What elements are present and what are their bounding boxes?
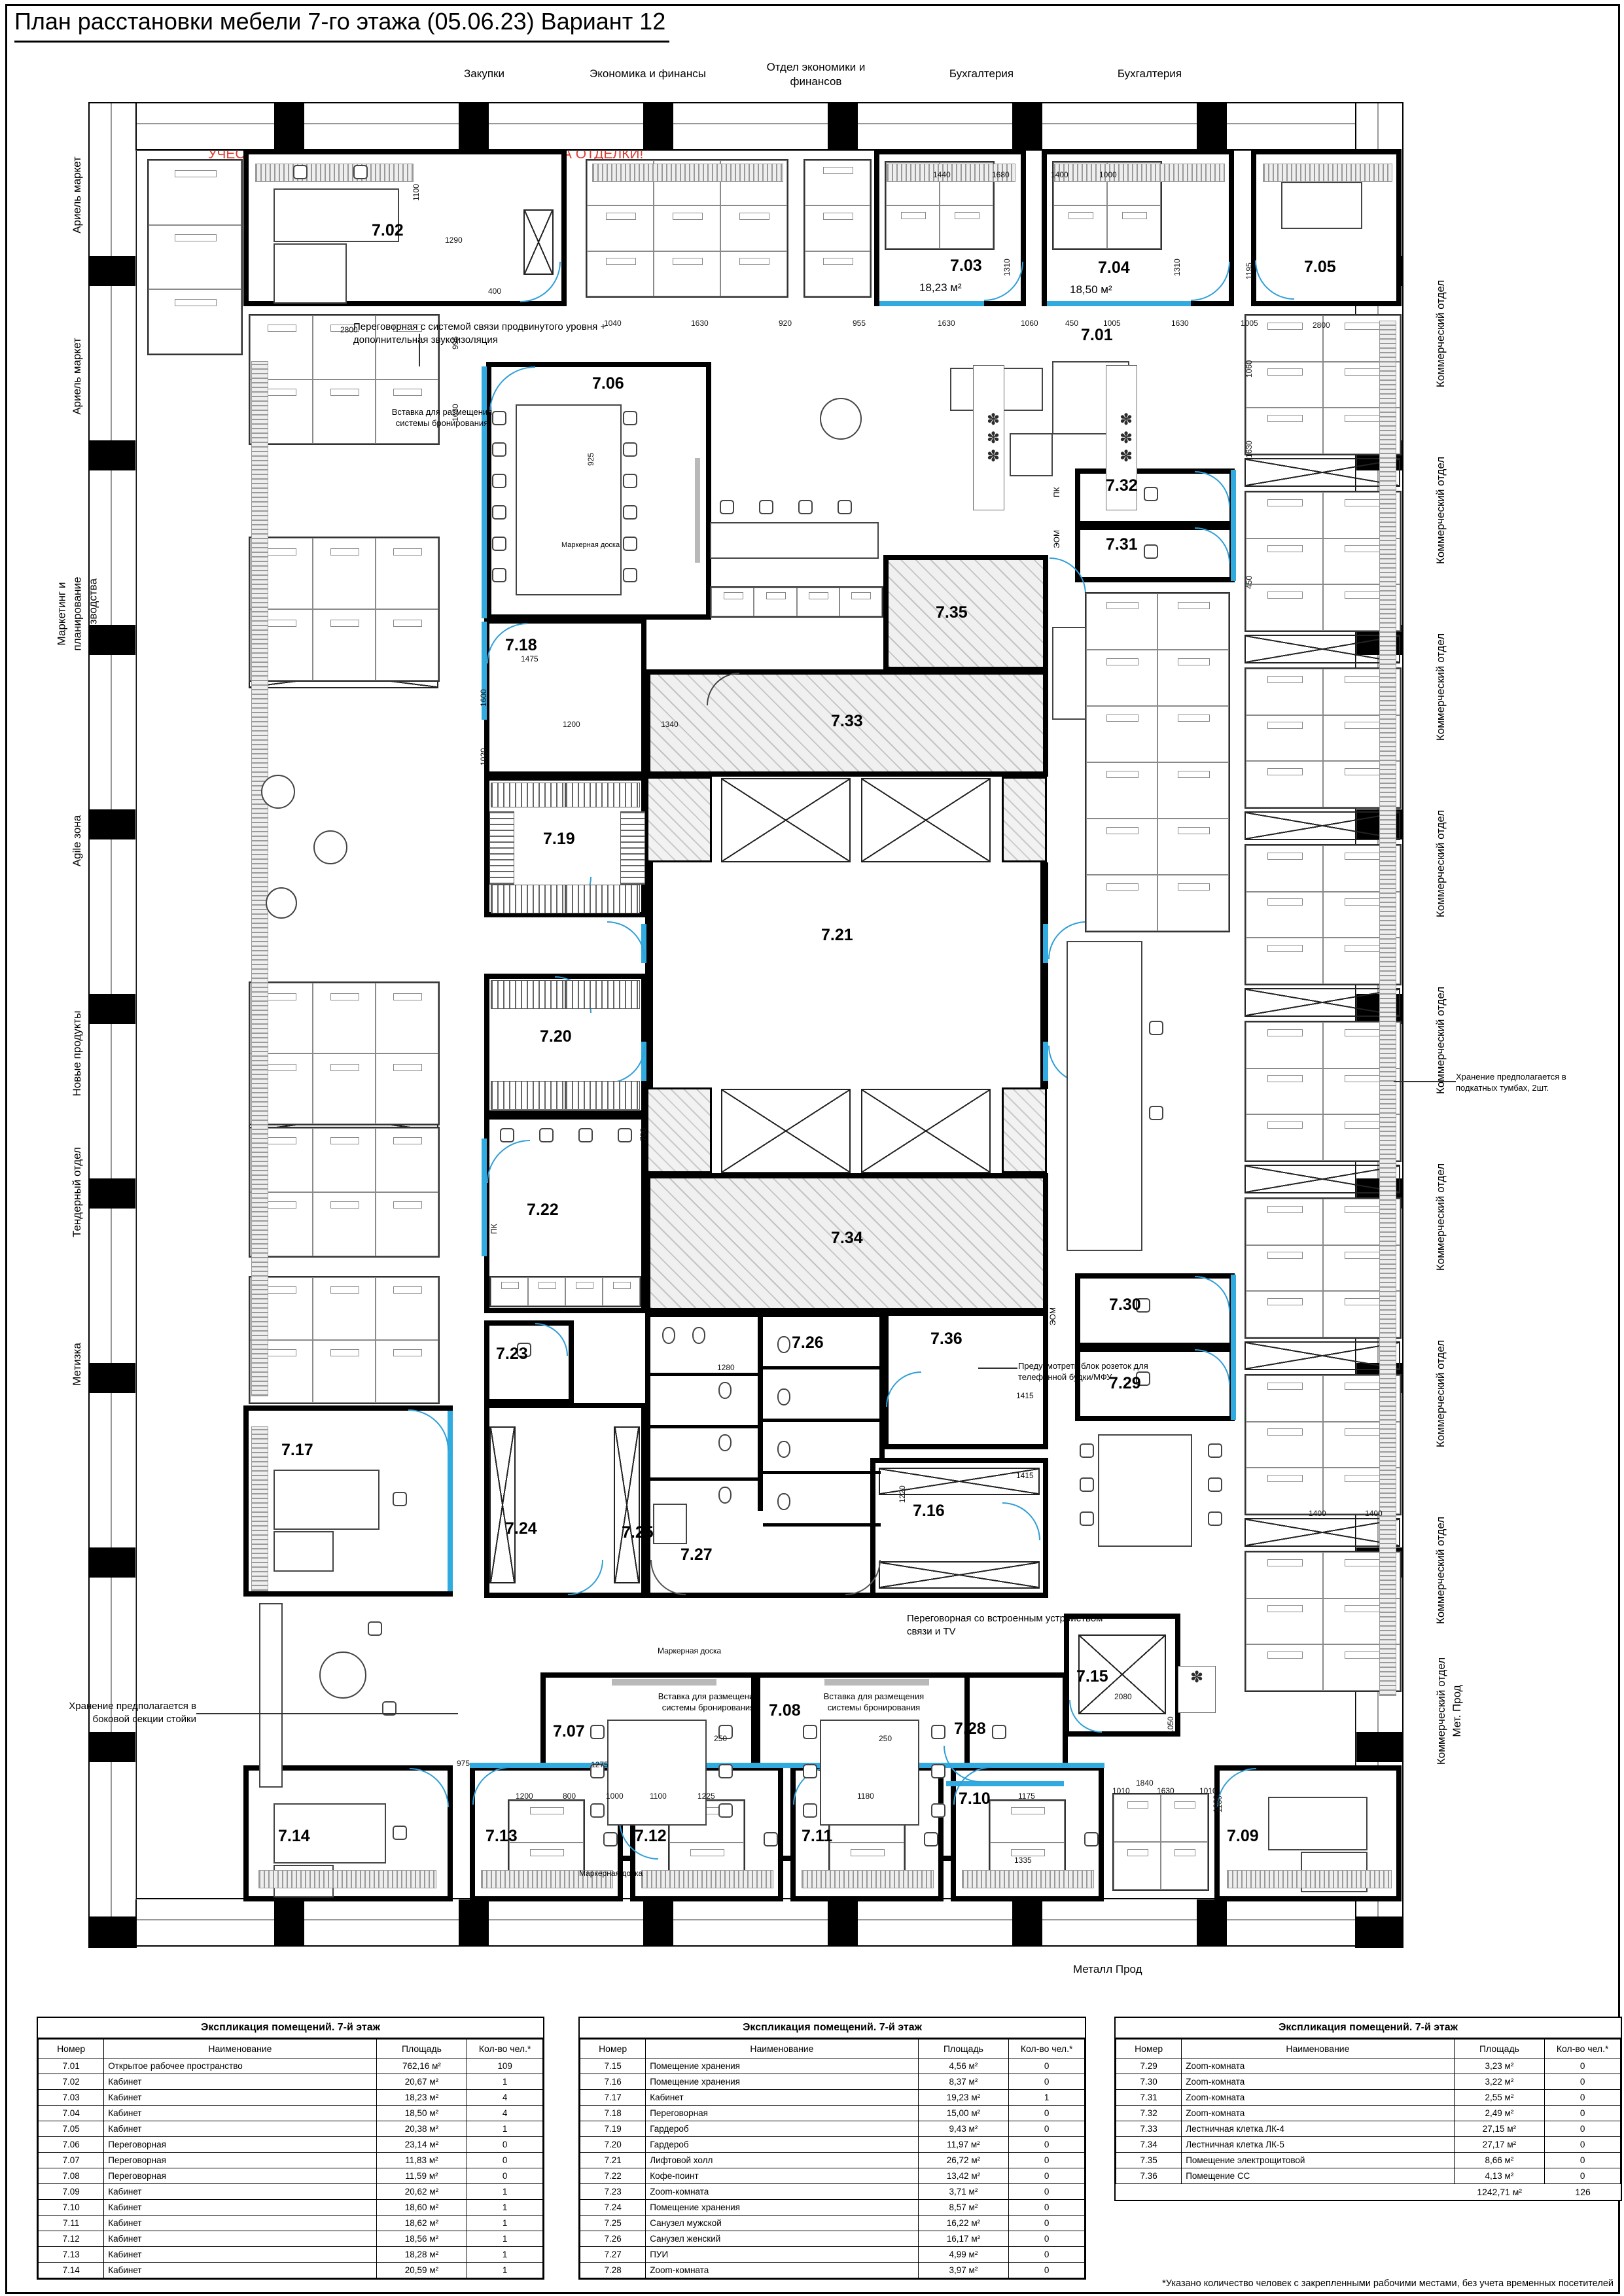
coat-rack	[565, 980, 640, 1009]
wall	[763, 1366, 881, 1369]
dimension-label: 1290	[445, 236, 463, 245]
desk	[1246, 845, 1323, 892]
wall	[650, 1477, 758, 1481]
desk	[1246, 1375, 1323, 1422]
glass-partition	[1231, 1275, 1236, 1420]
coat-rack	[565, 783, 640, 807]
coat-rack	[491, 980, 565, 1009]
wall	[763, 1523, 881, 1527]
desk	[1246, 1291, 1323, 1337]
room-number: 7.17	[281, 1441, 313, 1460]
desk	[313, 609, 376, 680]
column-header: Площадь	[1454, 2040, 1545, 2058]
room-area-cell: 3,22 м²	[1454, 2074, 1545, 2090]
exp-table-1: Экспликация помещений. 7-й этажНомерНаим…	[37, 2017, 544, 2280]
desk	[1086, 875, 1157, 931]
room-area-cell: 18,56 м²	[376, 2231, 467, 2247]
floor-plan-sheet: План расстановки мебели 7-го этажа (05.0…	[0, 0, 1624, 2296]
table-row: 7.07Переговорная11,83 м²0	[39, 2153, 543, 2168]
dimension-label: 1100	[412, 184, 421, 201]
dimension-label: 1180	[857, 1792, 874, 1801]
table-row: 7.08Переговорная11,59 м²0	[39, 2168, 543, 2184]
room-number-cell: 7.32	[1116, 2106, 1182, 2121]
department-label-right: Коммерческий отдел	[1433, 1340, 1449, 1447]
shaft-hatch	[646, 777, 712, 862]
chair	[293, 165, 308, 179]
room-name-cell: Zoom-комната	[1182, 2106, 1454, 2121]
room-name-cell: Открытое рабочее пространство	[104, 2058, 376, 2074]
room-area-cell: 13,42 м²	[918, 2168, 1009, 2184]
table-row: 7.14Кабинет20,59 м²1	[39, 2263, 543, 2278]
chair	[1080, 1477, 1094, 1492]
desk-cluster	[249, 1276, 440, 1404]
desk-cluster	[249, 1127, 440, 1258]
facade-band	[88, 1898, 1403, 1947]
annotation-line: связи и TV	[907, 1625, 1214, 1638]
desk	[1157, 650, 1229, 706]
department-label-right: Коммерческий отдел	[1433, 457, 1449, 564]
desk	[376, 1053, 438, 1124]
room-number-cell: 7.34	[1116, 2137, 1182, 2153]
schedule-footnote: *Указано количество человек с закрепленн…	[1162, 2278, 1614, 2289]
window-sill	[802, 1870, 934, 1888]
dimension-label: 1195	[1244, 262, 1254, 279]
dimension-label: 1630	[1244, 440, 1254, 458]
table-row: 7.24Помещение хранения8,57 м²0	[580, 2200, 1085, 2216]
room-people-cell: 0	[467, 2168, 543, 2184]
dimension-label: 1630	[1157, 1786, 1174, 1795]
window-sill	[1379, 321, 1396, 1696]
desk	[313, 1192, 376, 1256]
desk	[565, 1277, 603, 1306]
glass-partition	[1043, 1042, 1048, 1081]
room-people-cell: 0	[1545, 2090, 1621, 2106]
desk	[711, 588, 754, 616]
shaft-hatch	[646, 1087, 712, 1173]
department-label-line: Мет. Прод	[1449, 1657, 1465, 1765]
room-name-cell: Лифтовой холл	[646, 2153, 918, 2168]
desk	[1246, 892, 1323, 938]
room-number-cell: 7.12	[39, 2231, 104, 2247]
room-name-cell: Лестничная клетка ЛК-5	[1182, 2137, 1454, 2153]
department-label-right: Коммерческий отдел	[1433, 633, 1449, 741]
annotation-line: Переговорная с системой связи продвинуто…	[353, 321, 720, 334]
furniture-table	[820, 1720, 919, 1826]
chair	[803, 1764, 817, 1778]
room-people-cell: 0	[1009, 2184, 1085, 2200]
department-label-left: Метизка	[69, 1343, 85, 1386]
desk	[376, 609, 438, 680]
table-row: 7.19Гардероб9,43 м²0	[580, 2121, 1085, 2137]
room-people-cell: 0	[1545, 2137, 1621, 2153]
department-label-left: Новые продукты	[69, 1011, 85, 1097]
room-area-cell: 8,57 м²	[918, 2200, 1009, 2216]
chair	[578, 1128, 593, 1142]
room-name-cell: Кабинет	[104, 2200, 376, 2216]
room-people-cell: 1	[467, 2074, 543, 2090]
room-name-cell: Помещение хранения	[646, 2074, 918, 2090]
chair	[931, 1764, 945, 1778]
facade-band	[88, 102, 137, 1948]
dimension-label: 1400	[1309, 1509, 1326, 1518]
room-area-cell: 2,49 м²	[1454, 2106, 1545, 2121]
room-number: 7.27	[680, 1545, 713, 1564]
desk	[1246, 1422, 1323, 1468]
room-people-cell: 0	[467, 2137, 543, 2153]
desk	[654, 205, 720, 251]
furniture-table	[1010, 433, 1053, 476]
room-number: 7.33	[831, 712, 863, 731]
department-label-left: Тендерный отдел	[69, 1147, 85, 1237]
wall	[763, 1419, 881, 1422]
desk	[376, 1277, 438, 1340]
room-name-cell: Санузел мужской	[646, 2216, 918, 2231]
room-area-cell: 15,00 м²	[918, 2106, 1009, 2121]
annotation-line: Маркерная доска	[658, 1646, 756, 1657]
room-number: 7.03	[950, 256, 982, 275]
desk	[1246, 1468, 1323, 1514]
column-header: Номер	[1116, 2040, 1182, 2058]
annotation-line: ЭОМ	[1048, 1299, 1059, 1326]
column-header: Кол-во чел.*	[1545, 2040, 1621, 2058]
department-label-line: Бухгалтерия	[949, 67, 1014, 81]
chair	[924, 1832, 938, 1846]
desk	[1157, 706, 1229, 762]
room-people-cell: 1	[467, 2216, 543, 2231]
room-people-cell: 0	[1009, 2137, 1085, 2153]
annotation-line: ПК	[1052, 478, 1063, 497]
chair	[590, 1725, 605, 1739]
leader-line	[419, 334, 420, 366]
desk	[313, 1277, 376, 1340]
chair	[623, 505, 637, 520]
round-table	[820, 398, 862, 440]
desk	[1246, 1245, 1323, 1292]
dimension-label: 1220	[898, 1485, 907, 1503]
desk	[313, 1340, 376, 1403]
desk	[990, 1801, 1065, 1843]
room-number: 7.05	[1304, 258, 1336, 277]
elevator-shaft	[861, 1089, 991, 1173]
table-row: 7.01Открытое рабочее пространство762,16 …	[39, 2058, 543, 2074]
annotation: Маркерная доска	[561, 540, 660, 550]
room-name-cell: Помещение хранения	[646, 2200, 918, 2216]
total-people: 126	[1545, 2184, 1621, 2200]
room-people-cell: 0	[1009, 2168, 1085, 2184]
table-row: 7.18Переговорная15,00 м²0	[580, 2106, 1085, 2121]
glass-partition	[448, 1411, 453, 1591]
round-table	[261, 775, 295, 809]
room-name-cell: Кабинет	[104, 2121, 376, 2137]
table-title: Экспликация помещений. 7-й этаж	[1116, 2018, 1621, 2039]
annotation: Предусмотреть блок розеток длятелефонной…	[1018, 1361, 1214, 1383]
toilet	[718, 1487, 732, 1504]
room-area-cell: 20,59 м²	[376, 2263, 467, 2278]
room-area-cell: 23,14 м²	[376, 2137, 467, 2153]
room-number-cell: 7.29	[1116, 2058, 1182, 2074]
dimension-label: 250	[714, 1734, 727, 1743]
department-label-line: Экономика и финансы	[590, 67, 706, 81]
room-number: 7.30	[1109, 1296, 1141, 1315]
desk	[1161, 1794, 1208, 1842]
desk	[1157, 762, 1229, 819]
table-row: 7.34Лестничная клетка ЛК-527,17 м²0	[1116, 2137, 1621, 2153]
chair	[1149, 1106, 1163, 1120]
toilet	[777, 1441, 790, 1458]
dimension-label: 1335	[1014, 1856, 1032, 1865]
room-area-cell: 20,67 м²	[376, 2074, 467, 2090]
annotation-line: Маркерная доска	[579, 1869, 677, 1879]
desk-cluster	[1244, 1021, 1402, 1162]
coat-rack	[489, 811, 514, 885]
dimension-label: 1415	[1016, 1391, 1034, 1400]
room-number: 7.36	[930, 1330, 962, 1349]
desk	[1246, 761, 1323, 807]
furniture-table	[1268, 1797, 1368, 1850]
chair	[931, 1803, 945, 1818]
room-number: 7.21	[821, 926, 853, 945]
room-people-cell: 0	[1009, 2106, 1085, 2121]
table-row: 7.30Zoom-комната3,22 м²0	[1116, 2074, 1621, 2090]
column-header: Площадь	[376, 2040, 467, 2058]
room-area-cell: 3,71 м²	[918, 2184, 1009, 2200]
chair	[623, 568, 637, 582]
chair	[623, 411, 637, 425]
desk	[1246, 1552, 1323, 1598]
room-area-cell: 20,38 м²	[376, 2121, 467, 2137]
room-number: 7.22	[527, 1201, 559, 1220]
desk	[1246, 584, 1323, 631]
desk	[149, 289, 241, 354]
room-area-cell: 16,22 м²	[918, 2216, 1009, 2231]
chair	[492, 505, 506, 520]
storage-cabinet	[489, 1426, 516, 1583]
room-name-cell: Кабинет	[104, 2090, 376, 2106]
desk	[805, 205, 870, 251]
desk	[587, 205, 654, 251]
toilet	[777, 1493, 790, 1510]
furniture-table	[607, 1720, 707, 1826]
room-name-cell: Zoom-комната	[646, 2263, 918, 2278]
dimension-label: 1200	[563, 720, 580, 729]
annotation-line: Хранение предполагается в	[1456, 1072, 1624, 1083]
desk	[1246, 715, 1323, 762]
department-label-line: Метизка	[69, 1343, 85, 1386]
desk	[805, 160, 870, 205]
chair	[1080, 1511, 1094, 1526]
table-row: 7.05Кабинет20,38 м²1	[39, 2121, 543, 2137]
wall	[758, 1317, 763, 1511]
desk-cluster	[1244, 667, 1402, 809]
table-row: 7.32Zoom-комната2,49 м²0	[1116, 2106, 1621, 2121]
room-number-cell: 7.27	[580, 2247, 646, 2263]
room-name-cell: Помещение электрощитовой	[1182, 2153, 1454, 2168]
chair	[931, 1725, 945, 1739]
desk	[376, 1192, 438, 1256]
desk	[1246, 938, 1323, 984]
table-title: Экспликация помещений. 7-й этаж	[580, 2018, 1085, 2039]
storage-cabinet	[1244, 1518, 1400, 1547]
chair	[718, 1803, 733, 1818]
dimension-label: 1475	[521, 654, 538, 663]
room-number-cell: 7.02	[39, 2074, 104, 2090]
room-people-cell: 0	[1009, 2200, 1085, 2216]
desk	[1053, 205, 1107, 249]
glass-partition	[1231, 470, 1236, 581]
annotation: ПК	[489, 1214, 500, 1234]
room-people-cell: 0	[1009, 2058, 1085, 2074]
storage-cabinet	[1244, 1165, 1400, 1193]
desk	[1246, 539, 1323, 585]
desk	[940, 205, 993, 249]
department-label-line: Коммерческий отдел	[1433, 1163, 1449, 1271]
chair	[590, 1803, 605, 1818]
dimension-label: 955	[853, 319, 866, 328]
room-name-cell: Zoom-комната	[1182, 2058, 1454, 2074]
room-name-cell: Переговорная	[104, 2153, 376, 2168]
department-label-line: Коммерческий отдел	[1433, 280, 1449, 387]
room-number-cell: 7.09	[39, 2184, 104, 2200]
room-area-cell: 27,15 м²	[1454, 2121, 1545, 2137]
room-number: 7.10	[959, 1790, 991, 1809]
coat-rack	[491, 783, 565, 807]
annotation-line: боковой секции стойки	[36, 1713, 196, 1726]
annotation-line: подкатных тумбах, 2шт.	[1456, 1083, 1624, 1094]
department-label-left: Ариель маркет	[69, 338, 85, 415]
desk	[797, 588, 839, 616]
department-label-line: Коммерческий отдел	[1433, 987, 1449, 1094]
room-people-cell: 1	[467, 2184, 543, 2200]
room-number: 7.20	[540, 1027, 572, 1046]
dimension-label: 450	[1244, 576, 1254, 589]
desk	[376, 538, 438, 609]
desk	[654, 251, 720, 296]
dimension-label: 1010	[1199, 1786, 1217, 1795]
dimension-label: 700	[639, 1128, 648, 1141]
desk-cluster	[489, 1276, 641, 1307]
desk	[1246, 492, 1323, 539]
coat-rack	[620, 811, 645, 885]
table-row: 7.25Санузел мужской16,22 м²0	[580, 2216, 1085, 2231]
desk	[886, 205, 940, 249]
room-area-cell: 9,43 м²	[918, 2121, 1009, 2137]
table-grid: НомерНаименованиеПлощадьКол-во чел.*7.29…	[1116, 2039, 1621, 2184]
chair	[603, 1832, 618, 1846]
room-number: 7.12	[635, 1827, 667, 1846]
marker-board	[612, 1679, 716, 1686]
table-row: 7.12Кабинет18,56 м²1	[39, 2231, 543, 2247]
room-name-cell: Кабинет	[104, 2231, 376, 2247]
storage-cabinet	[614, 1426, 640, 1583]
dimension-label: 1005	[1103, 319, 1121, 328]
coat-rack	[565, 1081, 640, 1110]
room-people-cell: 1	[467, 2247, 543, 2263]
room-name-cell: Zoom-комната	[646, 2184, 918, 2200]
dimension-label: 1400	[1051, 170, 1068, 179]
table-row: 7.11Кабинет18,62 м²1	[39, 2216, 543, 2231]
room-area: 18,23 м²	[919, 281, 962, 294]
room-name-cell: Переговорная	[104, 2168, 376, 2184]
column-header: Кол-во чел.*	[467, 2040, 543, 2058]
chair	[1144, 487, 1158, 501]
wall	[650, 1425, 758, 1428]
room-number-cell: 7.23	[580, 2184, 646, 2200]
storage-cabinet	[1244, 988, 1400, 1017]
round-table	[266, 887, 297, 919]
desk-cluster	[803, 159, 872, 298]
room-area-cell: 762,16 м²	[376, 2058, 467, 2074]
desk	[1114, 1842, 1161, 1890]
room-area-cell: 3,23 м²	[1454, 2058, 1545, 2074]
room-name-cell: Кофе-поинт	[646, 2168, 918, 2184]
chair	[803, 1803, 817, 1818]
room-area-cell: 18,60 м²	[376, 2200, 467, 2216]
table-row: 7.20Гардероб11,97 м²0	[580, 2137, 1085, 2153]
department-label-right: Коммерческий отдел	[1433, 280, 1449, 387]
desk	[376, 1128, 438, 1192]
desk	[1114, 1794, 1161, 1842]
annotation-line: Вставка для размещения	[803, 1691, 944, 1703]
chair	[368, 1621, 382, 1636]
room-name-cell: Кабинет	[104, 2106, 376, 2121]
dimension-label: 1020	[479, 748, 488, 766]
room-name-cell: Переговорная	[104, 2137, 376, 2153]
toilet	[662, 1327, 675, 1344]
room-number-cell: 7.25	[580, 2216, 646, 2231]
chair	[1144, 544, 1158, 559]
department-label-left: Маркетинг ипланированиепроизводства	[54, 576, 100, 650]
dimension-label: 1630	[1171, 319, 1189, 328]
desk	[1086, 706, 1157, 762]
chair	[623, 442, 637, 457]
room-number: 7.23	[496, 1345, 528, 1364]
chair	[838, 500, 852, 514]
window-sill	[258, 1870, 436, 1888]
room-area-cell: 18,23 м²	[376, 2090, 467, 2106]
room-number-cell: 7.21	[580, 2153, 646, 2168]
department-label-right: Коммерческий отдел	[1433, 1517, 1449, 1624]
table-row: 7.02Кабинет20,67 м²1	[39, 2074, 543, 2090]
room-number-cell: 7.18	[580, 2106, 646, 2121]
room-number: 7.34	[831, 1229, 863, 1248]
dimension-label: 1600	[479, 689, 488, 707]
annotation-line: Вставка для размещения	[372, 407, 512, 418]
window-sill	[251, 361, 268, 1396]
room-number: 7.07	[553, 1722, 585, 1741]
glass-partition	[879, 301, 984, 306]
glass-partition	[470, 1763, 1104, 1768]
department-label-line: Ариель маркет	[69, 156, 85, 234]
dimension-label: 1000	[1099, 170, 1117, 179]
chair	[618, 1128, 632, 1142]
dimension-label: 1340	[661, 720, 679, 729]
annotation: Вставка для размещениясистемы бронирован…	[803, 1691, 944, 1714]
room-number: 7.32	[1106, 476, 1138, 495]
chair	[539, 1128, 554, 1142]
department-label-line: Отдел экономики и	[767, 60, 866, 75]
room-area-cell: 3,97 м²	[918, 2263, 1009, 2278]
room-number-cell: 7.22	[580, 2168, 646, 2184]
column-header: Номер	[580, 2040, 646, 2058]
room-number: 7.18	[505, 636, 537, 655]
desk	[1161, 1842, 1208, 1890]
annotation: Переговорная со встроенным устройствомсв…	[907, 1612, 1214, 1638]
department-label-top: Бухгалтерия	[949, 67, 1014, 81]
room-number-cell: 7.31	[1116, 2090, 1182, 2106]
department-label-line: Тендерный отдел	[69, 1147, 85, 1237]
glass-partition	[482, 1139, 487, 1256]
table-row: 7.22Кофе-поинт13,42 м²0	[580, 2168, 1085, 2184]
